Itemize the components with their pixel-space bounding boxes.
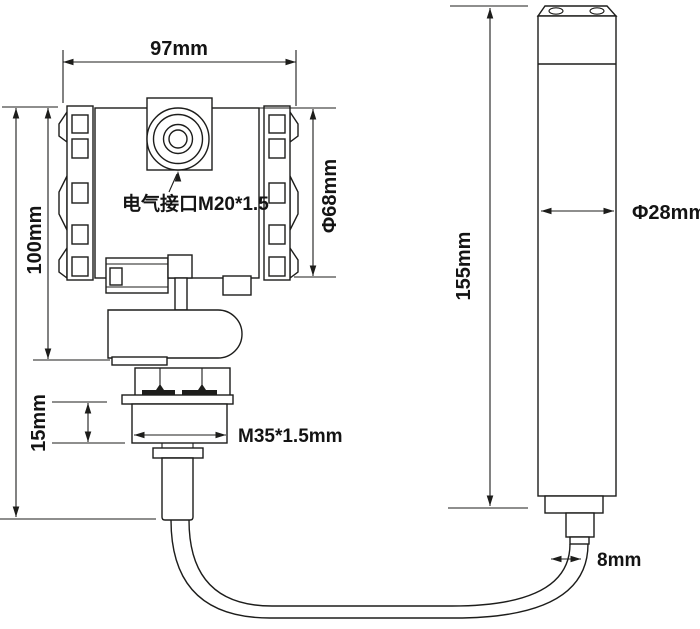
arrowhead-down (487, 496, 494, 507)
rib-slot (72, 257, 88, 276)
dim-label-155mm: 155mm (453, 232, 475, 301)
dim-label-m35: M35*1.5mm (238, 426, 343, 447)
neck-stem (175, 278, 187, 310)
dim-probe-length: 155mm (448, 6, 528, 508)
rib-fin (290, 248, 298, 278)
rib-slot (269, 183, 285, 203)
flange-plate (122, 395, 233, 404)
rib-slot (269, 225, 285, 244)
cable-outer-line (171, 520, 588, 618)
bracket-tab (110, 268, 122, 285)
collar (153, 448, 203, 458)
arrowhead-up (85, 403, 92, 414)
dim-label-100mm: 100mm (24, 206, 46, 275)
dimension-drawing-page: 97mm 100mm 15mm Φ68mm 电气接口M20 (0, 0, 700, 629)
gasket-strip (142, 390, 175, 395)
arrowhead-down (85, 432, 92, 443)
connection-cable (171, 520, 588, 618)
dim-label-68mm: Φ68mm (319, 159, 341, 233)
cable-inner-line (189, 520, 570, 606)
thread-stub (162, 458, 193, 520)
arrowhead-up (13, 108, 20, 119)
arrowhead-right (571, 556, 582, 563)
dim-top-width: 97mm (63, 38, 296, 106)
rib-slot (72, 115, 88, 133)
arrowhead-right (286, 59, 297, 66)
electrical-connector (147, 98, 212, 170)
dim-label-28mm: Φ28mm (632, 202, 700, 224)
transmitter-assembly (59, 98, 298, 520)
dim-nut-height: 15mm (28, 394, 125, 452)
probe-body (538, 16, 616, 496)
left-mounting-rib (59, 106, 93, 280)
rib-fin (59, 112, 67, 142)
cap-hole (549, 8, 563, 14)
dim-label-15mm: 15mm (28, 394, 50, 452)
cable-gland (566, 513, 594, 537)
arrowhead-up (45, 108, 52, 119)
dim-label-8mm: 8mm (597, 550, 641, 571)
rib-slot (72, 139, 88, 158)
rib-fin (59, 248, 67, 278)
hex-nut (132, 404, 227, 443)
rib-slot (72, 225, 88, 244)
arrowhead-left (63, 59, 74, 66)
neck-block (168, 255, 192, 278)
rib-fin (59, 176, 67, 230)
arrowhead-down (13, 507, 20, 518)
cap-hole (590, 8, 604, 14)
probe-step (545, 496, 603, 513)
arrowhead-down (45, 349, 52, 360)
rib-slot (269, 257, 285, 276)
flange-stud-block (135, 368, 230, 396)
gasket-strip (182, 390, 217, 395)
right-mounting-rib (264, 106, 298, 280)
label-electrical-interface: 电气接口M20*1.5 (122, 192, 269, 215)
arrowhead-up (310, 109, 317, 120)
arrowhead-down (310, 266, 317, 277)
coupling-body (108, 310, 242, 358)
rib-slot (72, 183, 88, 203)
gland-tip (570, 537, 589, 544)
connector-port-hole (169, 130, 187, 148)
coupling-base-plate (112, 357, 167, 365)
rib-slot (269, 115, 285, 133)
technical-dimension-drawing: 97mm 100mm 15mm Φ68mm 电气接口M20 (0, 0, 700, 629)
terminal-bracket (106, 258, 168, 293)
arrowhead-left (551, 556, 562, 563)
dim-label-97mm: 97mm (150, 38, 208, 60)
arrowhead-up (487, 8, 494, 19)
probe-assembly (538, 6, 616, 544)
rib-fin (290, 176, 298, 230)
side-port-block (223, 276, 251, 295)
rib-slot (269, 139, 285, 158)
rib-fin (290, 112, 298, 142)
